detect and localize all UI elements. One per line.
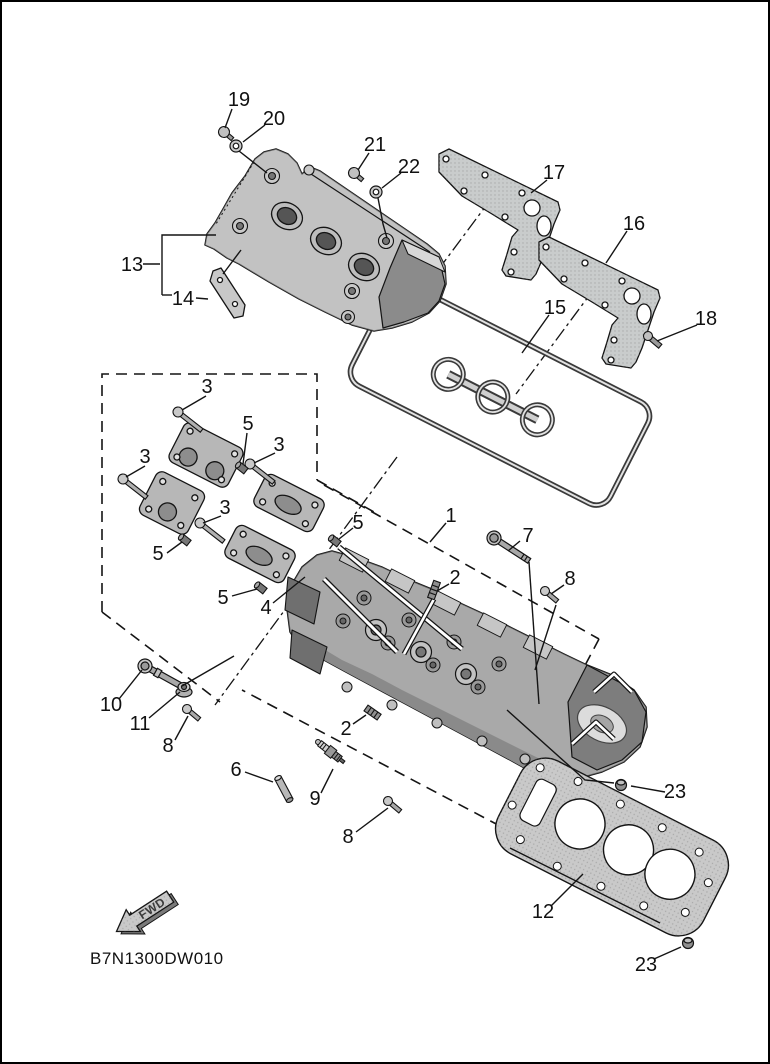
svg-text:2: 2 — [340, 718, 351, 740]
svg-text:11: 11 — [130, 713, 151, 735]
callout-10: 10 — [100, 670, 142, 716]
callout-14: 14 — [172, 288, 208, 310]
svg-text:20: 20 — [263, 108, 285, 130]
callout-17: 17 — [531, 162, 565, 193]
cap-bolt-3b — [116, 472, 150, 501]
damper-plate-14 — [210, 268, 245, 318]
dowel-5d — [327, 534, 341, 547]
cover-bolt-21 — [346, 165, 366, 184]
svg-text:8: 8 — [162, 735, 173, 757]
seal-washer-22 — [370, 186, 382, 198]
callout-5-c: 5 — [217, 587, 257, 609]
cap-bolt-3c — [243, 457, 277, 486]
cylinder-head-1 — [285, 547, 647, 785]
svg-text:3: 3 — [273, 434, 284, 456]
seal-washer-20 — [230, 140, 242, 152]
svg-text:18: 18 — [695, 308, 717, 330]
svg-text:3: 3 — [201, 376, 212, 398]
svg-text:16: 16 — [623, 213, 645, 235]
svg-text:17: 17 — [543, 162, 565, 184]
callout-20: 20 — [243, 108, 285, 142]
svg-text:5: 5 — [152, 543, 163, 565]
exploded-parts-drawing: FWD B7N1300DW010 19 20 21 22 17 16 18 15… — [2, 2, 770, 1064]
cam-cap-d — [222, 523, 297, 585]
cam-cap-c — [251, 472, 326, 534]
nut-23a — [616, 780, 627, 791]
callout-5-d: 5 — [339, 512, 364, 539]
svg-text:14: 14 — [172, 288, 194, 310]
svg-text:8: 8 — [564, 568, 575, 590]
nut-23b — [683, 938, 694, 949]
callout-5-b: 5 — [152, 542, 182, 565]
svg-text:2: 2 — [449, 567, 460, 589]
callout-3-c: 3 — [254, 434, 285, 463]
svg-text:5: 5 — [242, 413, 253, 435]
svg-text:9: 9 — [309, 788, 320, 810]
drawing-code: B7N1300DW010 — [90, 949, 224, 968]
callout-7: 7 — [508, 525, 534, 551]
callout-6: 6 — [230, 759, 273, 782]
callout-2-a: 2 — [437, 567, 461, 591]
callout-23-b: 23 — [635, 947, 681, 976]
callout-21: 21 — [358, 134, 386, 170]
svg-text:5: 5 — [217, 587, 228, 609]
callout-3-d: 3 — [203, 497, 231, 523]
spark-plug-9 — [313, 737, 347, 767]
svg-text:1: 1 — [445, 505, 456, 527]
callout-9: 9 — [309, 769, 333, 810]
callout-5-a: 5 — [242, 413, 253, 464]
bolt-8-top — [539, 585, 560, 605]
svg-text:19: 19 — [228, 89, 250, 111]
callout-19: 19 — [225, 89, 250, 128]
callout-8-left: 8 — [162, 716, 188, 757]
svg-text:12: 12 — [532, 901, 554, 923]
svg-text:22: 22 — [398, 156, 420, 178]
callout-13: 13 — [121, 254, 143, 276]
stud-6 — [274, 775, 294, 804]
bolt-8-left — [181, 703, 202, 723]
head-gasket-12 — [486, 748, 738, 945]
svg-text:3: 3 — [139, 446, 150, 468]
callout-23-a: 23 — [631, 781, 686, 803]
callout-12: 12 — [532, 874, 583, 923]
svg-text:23: 23 — [635, 954, 657, 976]
callout-18: 18 — [657, 308, 717, 341]
svg-text:21: 21 — [364, 134, 386, 156]
callout-1: 1 — [430, 505, 457, 542]
bolt-8-bottom — [382, 795, 403, 815]
svg-text:3: 3 — [219, 497, 230, 519]
fwd-arrow: FWD — [109, 884, 181, 946]
callout-22: 22 — [382, 156, 420, 188]
svg-text:7: 7 — [522, 525, 533, 547]
svg-text:23: 23 — [664, 781, 686, 803]
callout-8-top: 8 — [551, 568, 576, 594]
dowel-5c — [253, 581, 267, 594]
callout-3-b: 3 — [126, 446, 151, 477]
svg-text:5: 5 — [352, 512, 363, 534]
cam-caps — [137, 420, 327, 585]
callout-8-bottom: 8 — [342, 808, 388, 848]
svg-text:8: 8 — [342, 826, 353, 848]
callout-15: 15 — [522, 297, 566, 353]
svg-text:13: 13 — [121, 254, 143, 276]
svg-text:15: 15 — [544, 297, 566, 319]
callout-3-a: 3 — [182, 376, 213, 410]
callout-16: 16 — [606, 213, 645, 263]
svg-text:4: 4 — [260, 597, 271, 619]
svg-text:6: 6 — [230, 759, 241, 781]
stud-2b — [364, 705, 381, 720]
callout-11: 11 — [130, 692, 180, 735]
svg-text:10: 10 — [100, 694, 122, 716]
parts-diagram-page: FWD B7N1300DW010 19 20 21 22 17 16 18 15… — [0, 0, 770, 1064]
callout-2-b: 2 — [340, 715, 366, 740]
